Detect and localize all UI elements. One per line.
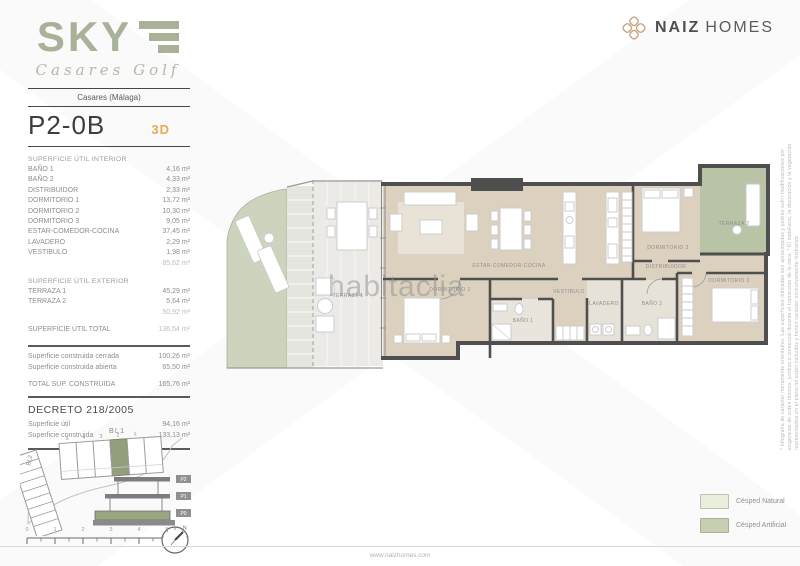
highlighted-unit [110,439,129,476]
artificial-grass-label: Césped Artificial [736,522,786,529]
surface-row: VESTIBULO1,98 m² [28,248,190,258]
skye-logo-text: SKY [37,16,132,58]
natural-grass-label: Césped Natural [736,498,785,505]
natural-grass-swatch [700,494,729,509]
surface-row: LAVADERO2,29 m² [28,238,190,248]
naiz-homes-logo: NAIZHOMES [621,15,774,41]
svg-text:3: 3 [100,433,103,439]
legend-row-natural: Césped Natural [700,494,786,509]
wardrobe-dorm3 [622,192,632,262]
footer: www.naizhomes.com [0,546,800,559]
surface-row: ESTAR-COMEDOR-COCINA37,45 m² [28,227,190,237]
grass-legend: Césped Natural Césped Artificial [700,494,786,542]
svg-text:2: 2 [81,527,84,533]
room-label-dorm3: DORMITORIO 3 [647,245,688,251]
skye-logo-subtitle: Casares Golf [22,61,194,79]
floor-plan-drawing: TERRAZA 1 ESTAR-COMEDOR-COCINA DORMITORI… [222,158,778,392]
interior-surfaces-title: SUPERFICIE ÚTIL INTERIOR [28,155,190,165]
surface-row: BAÑO 14,16 m² [28,165,190,175]
exterior-surfaces-title: SUPERFICIE ÚTIL EXTERIOR [28,277,190,287]
artificial-grass-swatch [700,518,729,533]
svg-text:4: 4 [83,435,86,441]
bed-dorm2 [712,288,759,322]
surface-row: BAÑO 24,33 m² [28,175,190,185]
naiz-lattice-icon [621,15,647,41]
floor-p0-slab-highlighted [95,511,170,520]
level-tag-p2: P2 [180,477,186,483]
total-construida-row: TOTAL SUP. CONSTRUIDA165,76 m² [28,379,190,390]
naiz-logo-text: NAIZHOMES [655,19,774,37]
room-label-bano2: BAÑO 2 [642,300,663,307]
view-3d-link[interactable]: 3D [151,122,170,137]
surface-row: DORMITORIO 39,05 m² [28,217,190,227]
legend-row-artificial: Césped Artificial [700,518,786,533]
svg-text:4: 4 [137,527,140,533]
svg-text:5: 5 [66,436,69,442]
north-label: N [183,526,187,532]
scale-numbers: 0 1 2 3 4 5 [25,527,168,533]
floor-p2-slab [114,477,170,482]
level-tag-p0: P0 [180,511,186,517]
skye-logo-e-icon [139,21,179,53]
room-label-distribuidor: DISTRIBUIDOR [646,264,687,270]
room-label-vestibulo: VESTIBULO [553,289,585,295]
surface-row: TERRAZA 25,64 m² [28,297,190,307]
room-label-estar: ESTAR-COMEDOR-COCINA [472,263,545,269]
legal-disclaimer: * Infografía de carácter meramente orien… [780,140,795,450]
svg-text:0: 0 [25,527,28,533]
location-label: Casares (Málaga) [28,89,190,106]
surface-row: TERRAZA 145,29 m² [28,287,190,297]
surface-row: Superficie construida cerrada100,26 m² [28,352,190,362]
floor-plan: TERRAZA 1 ESTAR-COMEDOR-COCINA DORMITORI… [222,158,778,397]
divider [28,146,190,147]
skye-logo: SKY Casares Golf [22,16,194,79]
interior-subtotal: 85,62 m² [28,259,190,269]
structural-wall [471,178,523,191]
footer-url[interactable]: www.naizhomes.com [369,552,430,559]
floor-p1-slab [105,494,170,499]
level-tags: P2 P1 P0 [176,475,191,517]
svg-text:3: 3 [109,527,112,533]
level-tag-p1: P1 [180,494,186,500]
hall-closet [556,326,584,340]
brochure-page: SKY Casares Golf NAIZHOMES Casares (Mála… [0,0,800,566]
garden-side-table [264,233,274,243]
exterior-subtotal: 50,92 m² [28,308,190,318]
room-label-dorm2: DORMITORIO 2 [708,278,749,284]
surface-row: DISTRIBUIDOR2,33 m² [28,186,190,196]
wardrobe-dorm2 [682,278,693,336]
svg-text:1: 1 [133,431,136,437]
surface-row: DORMITORIO 210,30 m² [28,207,190,217]
room-label-bano1: BAÑO 1 [513,317,534,324]
block1-units: 5 4 3 2 1 [59,429,164,479]
total-util-row: SUPERFICIE ÚTIL TOTAL136,54 m² [28,324,190,335]
scale-line [27,538,167,544]
decreto-title: DECRETO 218/2005 [28,404,190,416]
surface-row: DORMITORIO 113,72 m² [28,196,190,206]
room-label-lavadero: LAVADERO [589,301,619,307]
paved-path [287,186,313,368]
indoor-dining-set [491,208,531,250]
habitaclia-watermark: habitaclia [328,270,465,304]
room-label-terraza2: TERRAZA 2 [719,221,750,227]
surface-specs-panel: Casares (Málaga) P2-0B 3D SUPERFICIE ÚTI… [28,88,190,450]
unit-code: P2-0B [28,110,105,141]
surface-row: Superficie construida abierta65,50 m² [28,363,190,373]
svg-text:1: 1 [53,527,56,533]
